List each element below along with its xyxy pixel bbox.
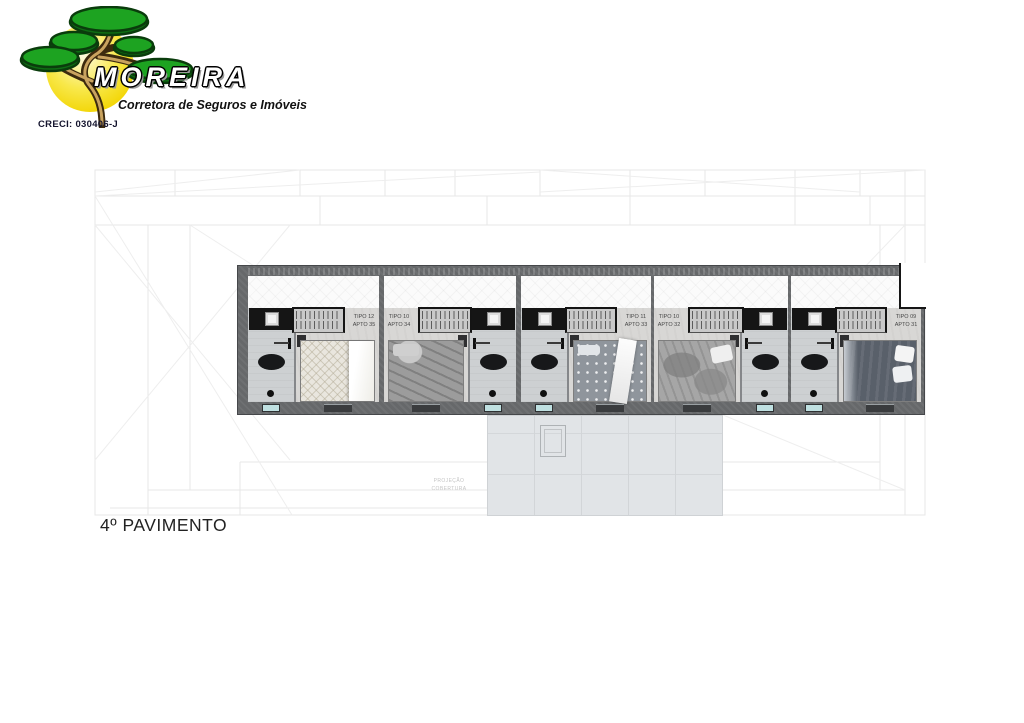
unit-tipo-label: TIPO 11 <box>621 313 651 321</box>
washer-icon <box>759 312 773 326</box>
washer-icon <box>808 312 822 326</box>
closet <box>471 308 515 330</box>
apartment-unit: TIPO 10 APTO 32 <box>654 276 788 402</box>
bathroom-corridor <box>521 308 569 402</box>
bed <box>573 340 647 402</box>
bed <box>388 340 464 402</box>
bathtub-icon <box>480 354 507 370</box>
roof-terrace <box>487 415 723 516</box>
toilet-icon <box>810 390 817 397</box>
toilet-icon <box>489 390 496 397</box>
balcony <box>248 276 379 309</box>
unit-tipo-label: TIPO 09 <box>891 313 921 321</box>
floorplan-sheet: MOREIRA Corretora de Seguros e Imóveis C… <box>0 0 1024 723</box>
pillow <box>892 365 913 383</box>
washer-icon <box>538 312 552 326</box>
plan-corner-notch <box>899 263 926 309</box>
apartment-unit: TIPO 12 APTO 35 <box>248 276 379 402</box>
bedroom-window <box>683 404 711 412</box>
unit-tipo-label: TIPO 12 <box>349 313 379 321</box>
towel-bar-icon <box>831 338 834 349</box>
bed-sheet <box>609 338 637 404</box>
unit-tipo-label: TIPO 10 <box>654 313 684 321</box>
pillow <box>710 344 734 364</box>
pillow <box>894 345 915 364</box>
bed <box>300 340 375 402</box>
bathroom-window <box>262 404 280 412</box>
toilet-icon <box>761 390 768 397</box>
floor-title: 4º PAVIMENTO <box>100 515 227 536</box>
bathtub-icon <box>752 354 779 370</box>
unit-tipo-label: TIPO 10 <box>384 313 414 321</box>
bed-sheet <box>844 341 858 401</box>
bathtub-icon <box>531 354 558 370</box>
unit-label: TIPO 11 APTO 33 <box>621 313 651 330</box>
wardrobe <box>292 307 345 333</box>
balcony <box>384 276 516 309</box>
unit-label: TIPO 10 APTO 32 <box>654 313 684 330</box>
unit-label: TIPO 12 APTO 35 <box>349 313 379 330</box>
washer-icon <box>487 312 501 326</box>
unit-label: TIPO 09 APTO 31 <box>891 313 921 330</box>
brand-name: MOREIRA <box>94 62 250 93</box>
bathroom-window <box>535 404 553 412</box>
bed <box>658 340 736 402</box>
towel-bar-icon <box>745 338 748 349</box>
wardrobe <box>565 307 617 333</box>
bedroom: TIPO 10 APTO 32 <box>654 308 740 402</box>
bedroom-window <box>412 404 440 412</box>
bathroom-window <box>805 404 823 412</box>
floor-plan: TIPO 12 APTO 35 TIPO 10 <box>237 265 925 415</box>
washer-icon <box>265 312 279 326</box>
bed <box>843 340 917 402</box>
unit-apto-label: APTO 32 <box>654 321 684 329</box>
bedroom-window <box>596 404 624 412</box>
bathroom-window <box>756 404 774 412</box>
skylight <box>540 425 566 457</box>
creci-registration: CRECI: 030406-J <box>38 119 118 130</box>
pillow <box>393 344 420 356</box>
unit-label: TIPO 10 APTO 34 <box>384 313 414 330</box>
bathroom-corridor <box>468 308 516 402</box>
closet <box>522 308 566 330</box>
pillow <box>578 345 600 356</box>
bedroom: TIPO 09 APTO 31 <box>839 308 921 402</box>
towel-bar-icon <box>288 338 291 349</box>
bedroom-window <box>324 404 352 412</box>
bathtub-icon <box>258 354 285 370</box>
closet <box>792 308 836 330</box>
bathroom-corridor <box>791 308 839 402</box>
towel-bar-icon <box>473 338 476 349</box>
closet <box>249 308 293 330</box>
balcony <box>654 276 788 309</box>
bedroom: TIPO 12 APTO 35 <box>296 308 379 402</box>
bathtub-icon <box>801 354 828 370</box>
faint-annotation: PROJEÇÃO COBERTURA <box>418 478 480 493</box>
bedroom: TIPO 11 APTO 33 <box>569 308 651 402</box>
balcony <box>521 276 651 309</box>
toilet-icon <box>267 390 274 397</box>
closet <box>743 308 787 330</box>
bedroom: TIPO 10 APTO 34 <box>384 308 468 402</box>
unit-apto-label: APTO 31 <box>891 321 921 329</box>
brand-tagline: Corretora de Seguros e Imóveis <box>118 98 307 112</box>
bed-sheet <box>349 341 374 401</box>
unit-apto-label: APTO 35 <box>349 321 379 329</box>
toilet-icon <box>540 390 547 397</box>
company-logo: MOREIRA Corretora de Seguros e Imóveis C… <box>10 4 300 136</box>
unit-apto-label: APTO 33 <box>621 321 651 329</box>
unit-apto-label: APTO 34 <box>384 321 414 329</box>
apartment-unit: TIPO 10 APTO 34 <box>384 276 516 402</box>
wardrobe <box>688 307 744 333</box>
bathroom-window <box>484 404 502 412</box>
wardrobe <box>835 307 887 333</box>
bathroom-corridor <box>248 308 296 402</box>
wardrobe <box>418 307 472 333</box>
bedroom-window <box>866 404 894 412</box>
apartment-unit: TIPO 11 APTO 33 <box>521 276 651 402</box>
towel-bar-icon <box>561 338 564 349</box>
bathroom-corridor <box>740 308 788 402</box>
